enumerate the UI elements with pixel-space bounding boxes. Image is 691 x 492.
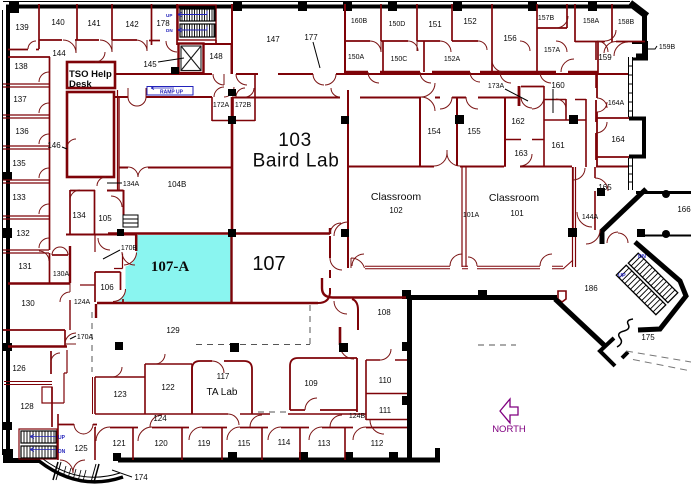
svg-text:101A: 101A (463, 212, 480, 219)
svg-text:150D: 150D (389, 21, 406, 28)
svg-text:107: 107 (252, 253, 285, 275)
svg-text:UP: UP (58, 435, 66, 441)
svg-text:123: 123 (113, 390, 127, 399)
svg-text:119: 119 (198, 439, 211, 448)
svg-text:137: 137 (13, 95, 27, 104)
svg-text:152: 152 (463, 17, 477, 26)
svg-text:104B: 104B (168, 180, 187, 189)
svg-text:173A: 173A (488, 83, 505, 90)
svg-text:160: 160 (551, 81, 565, 90)
svg-text:172B: 172B (235, 102, 252, 109)
svg-text:108: 108 (377, 308, 391, 317)
svg-text:158B: 158B (618, 19, 635, 26)
svg-text:124A: 124A (74, 299, 91, 306)
svg-text:157B: 157B (538, 15, 555, 22)
svg-text:147: 147 (266, 35, 280, 44)
svg-text:128: 128 (20, 402, 34, 411)
svg-text:117: 117 (217, 372, 230, 381)
svg-text:162: 162 (511, 117, 525, 126)
svg-text:TA Lab: TA Lab (207, 387, 238, 398)
svg-text:163: 163 (514, 149, 528, 158)
svg-text:177: 177 (304, 33, 318, 42)
svg-text:145: 145 (143, 60, 157, 69)
svg-text:130: 130 (21, 299, 35, 308)
svg-text:102: 102 (389, 206, 403, 215)
svg-text:159B: 159B (659, 44, 676, 51)
svg-text:129: 129 (166, 326, 180, 335)
svg-text:105: 105 (98, 214, 112, 223)
svg-text:122: 122 (161, 383, 175, 392)
svg-text:101: 101 (510, 209, 524, 218)
svg-text:131: 131 (18, 262, 32, 271)
svg-text:158A: 158A (583, 18, 600, 25)
svg-text:170A: 170A (77, 334, 94, 341)
svg-text:UP: UP (618, 273, 626, 279)
svg-text:NORTH: NORTH (492, 424, 526, 435)
svg-text:Classroom: Classroom (371, 191, 421, 203)
svg-text:Baird Lab: Baird Lab (253, 151, 340, 172)
svg-text:152A: 152A (444, 56, 461, 63)
svg-text:151: 151 (428, 20, 442, 29)
svg-text:134A: 134A (123, 181, 140, 188)
svg-text:106: 106 (100, 283, 114, 292)
svg-text:155: 155 (467, 127, 481, 136)
svg-text:109: 109 (304, 379, 318, 388)
svg-text:138: 138 (14, 62, 28, 71)
svg-text:172A: 172A (213, 102, 230, 109)
svg-text:161: 161 (551, 141, 565, 150)
svg-text:160B: 160B (351, 18, 368, 25)
svg-text:114: 114 (278, 438, 291, 447)
svg-text:141: 141 (87, 19, 101, 28)
svg-text:120: 120 (154, 439, 168, 448)
svg-text:159: 159 (598, 53, 612, 62)
svg-text:DN: DN (638, 254, 646, 260)
svg-text:103: 103 (278, 130, 312, 151)
svg-text:140: 140 (51, 18, 65, 27)
svg-text:134: 134 (72, 211, 86, 220)
svg-text:142: 142 (125, 20, 139, 29)
svg-text:135: 135 (12, 159, 26, 168)
svg-text:178: 178 (156, 19, 170, 28)
svg-text:DN: DN (58, 449, 66, 455)
svg-text:124: 124 (153, 414, 167, 423)
svg-text:156: 156 (503, 34, 517, 43)
svg-text:110: 110 (379, 376, 392, 385)
svg-text:175: 175 (641, 333, 655, 342)
svg-text:157A: 157A (544, 47, 561, 54)
svg-text:125: 125 (74, 444, 88, 453)
svg-text:170B: 170B (121, 245, 138, 252)
svg-text:165: 165 (598, 183, 612, 192)
svg-text:107-A: 107-A (151, 259, 189, 275)
svg-text:UP: UP (166, 13, 172, 18)
svg-text:166: 166 (677, 205, 691, 214)
svg-text:186: 186 (584, 284, 598, 293)
svg-text:164: 164 (611, 135, 625, 144)
svg-text:126: 126 (12, 364, 26, 373)
svg-text:148: 148 (209, 52, 223, 61)
svg-text:RAMP UP: RAMP UP (160, 90, 184, 96)
svg-text:124B: 124B (349, 413, 366, 420)
svg-text:Classroom: Classroom (489, 192, 539, 204)
svg-text:144A: 144A (582, 214, 599, 221)
svg-text:150A: 150A (348, 54, 365, 61)
svg-text:112: 112 (371, 439, 384, 448)
svg-text:111: 111 (379, 406, 392, 415)
svg-text:154: 154 (427, 127, 441, 136)
svg-text:130A: 130A (53, 271, 70, 278)
svg-text:DN: DN (166, 28, 173, 33)
svg-text:139: 139 (15, 23, 29, 32)
svg-text:121: 121 (112, 439, 126, 448)
svg-text:Desk: Desk (69, 79, 92, 90)
svg-text:133: 133 (12, 193, 26, 202)
svg-text:115: 115 (238, 439, 251, 448)
svg-text:164A: 164A (608, 100, 625, 107)
svg-text:150C: 150C (391, 56, 408, 63)
svg-text:174: 174 (134, 473, 148, 482)
svg-text:132: 132 (16, 229, 30, 238)
svg-text:146: 146 (47, 141, 61, 150)
svg-text:144: 144 (52, 49, 66, 58)
svg-text:113: 113 (318, 439, 331, 448)
svg-text:136: 136 (15, 127, 29, 136)
